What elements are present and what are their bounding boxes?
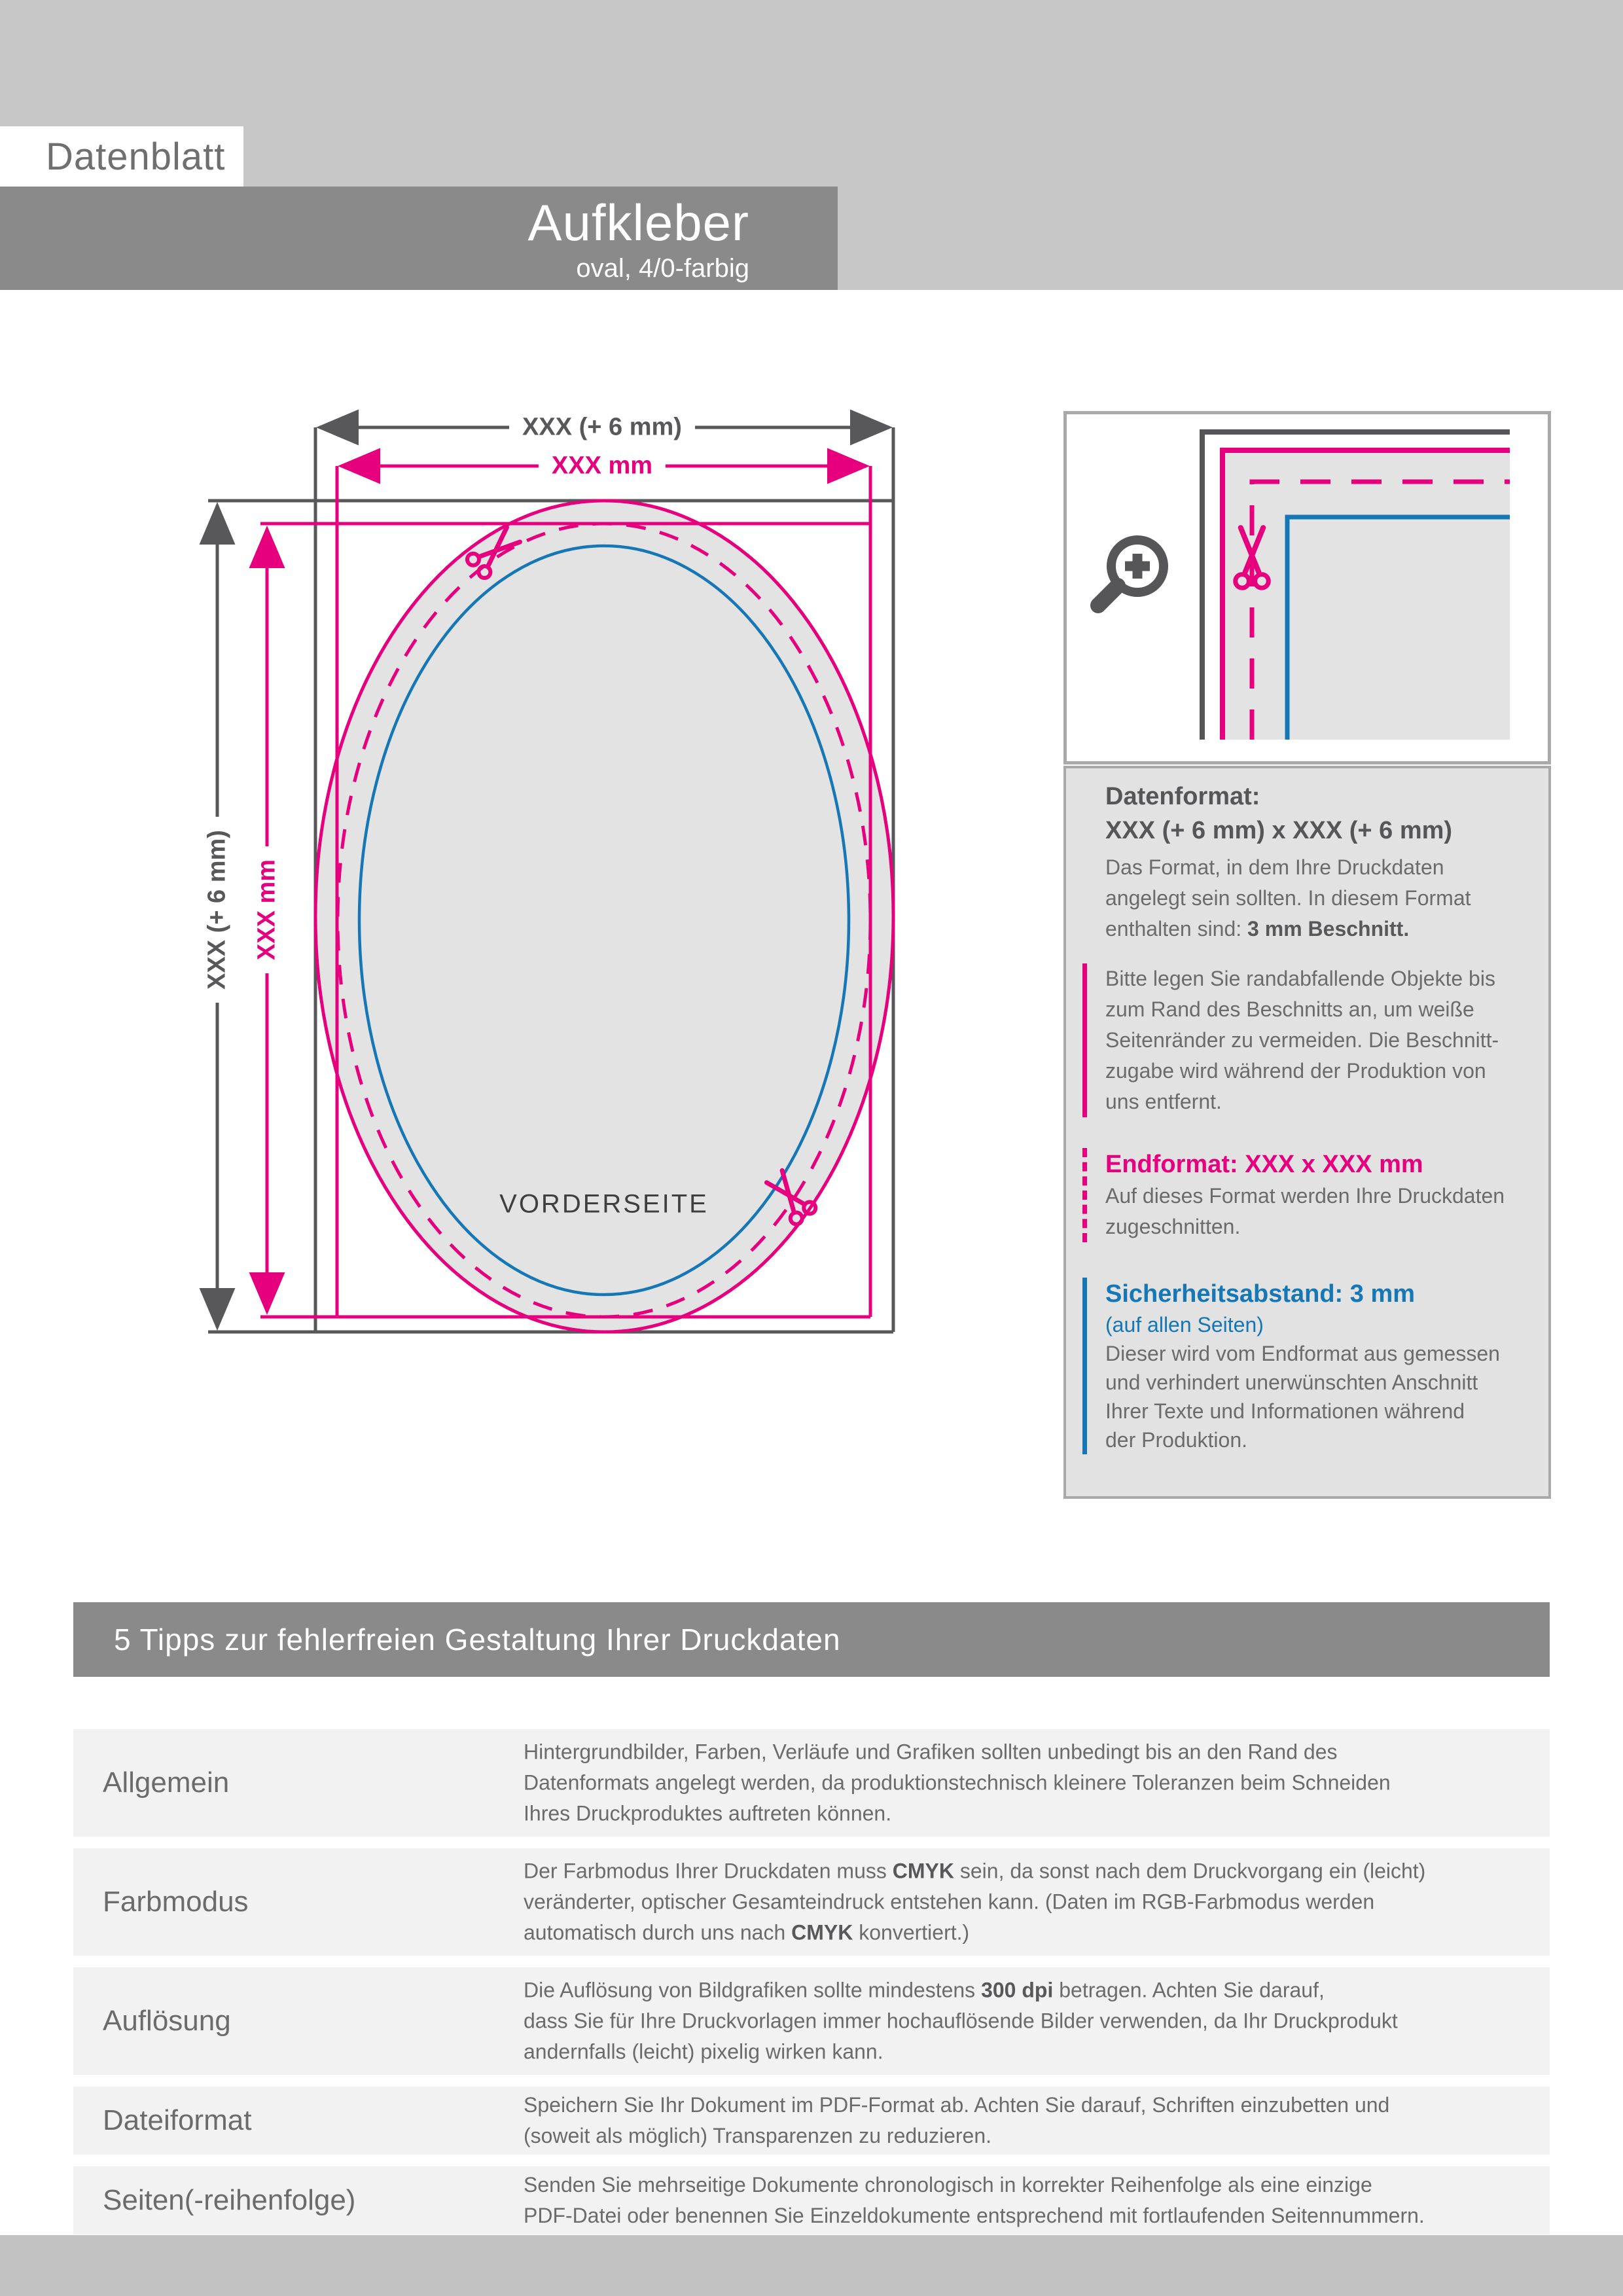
- tips-row-label: Dateiformat: [103, 2104, 251, 2137]
- safety-title: Sicherheitsabstand: 3 mm: [1105, 1278, 1522, 1310]
- tips-header-bar: 5 Tipps zur fehlerfreien Gestaltung Ihre…: [73, 1602, 1550, 1677]
- safety-block: Sicherheitsabstand: 3 mm (auf allen Seit…: [1082, 1278, 1522, 1454]
- endformat-title: Endformat: XXX x XXX mm: [1105, 1148, 1522, 1181]
- sheet-label-box: Datenblatt: [0, 126, 243, 187]
- tips-row-label: Seiten(-reihenfolge): [103, 2184, 355, 2217]
- tips-row: Dateiformat Speichern Sie Ihr Dokument i…: [73, 2087, 1550, 2155]
- tips-row-text: Speichern Sie Ihr Dokument im PDF-Format…: [524, 2090, 1544, 2151]
- dim-height-outer-label: XXX (+ 6 mm): [202, 817, 233, 1003]
- page-subtitle: oval, 4/0-farbig: [576, 253, 749, 284]
- endformat-body: Auf dieses Format werden Ihre Druckdaten…: [1105, 1181, 1522, 1242]
- datasheet-page: { "header": { "sheet_label": "Datenblatt…: [0, 0, 1623, 2296]
- tips-row-label: Allgemein: [103, 1767, 229, 1799]
- dim-height-inner-label: XXX mm: [252, 846, 283, 973]
- bleed-note: Bitte legen Sie randabfallende Objekte b…: [1082, 963, 1522, 1117]
- corner-detail-box: [1063, 411, 1551, 764]
- dim-width-inner-label: XXX mm: [539, 451, 666, 482]
- format-info-panel: Datenformat: XXX (+ 6 mm) x XXX (+ 6 mm)…: [1063, 766, 1551, 1499]
- datenformat-title: Datenformat:: [1105, 780, 1522, 813]
- tips-row-text: Der Farbmodus Ihrer Druckdaten muss CMYK…: [524, 1856, 1544, 1948]
- safety-body: Dieser wird vom Endformat aus gemessenun…: [1105, 1339, 1522, 1454]
- tips-row-text: Hintergrundbilder, Farben, Verläufe und …: [524, 1737, 1544, 1829]
- diagram-canvas: [0, 367, 982, 1388]
- dim-width-outer-label: XXX (+ 6 mm): [509, 412, 695, 443]
- tips-title: 5 Tipps zur fehlerfreien Gestaltung Ihre…: [114, 1622, 841, 1657]
- tips-row: Farbmodus Der Farbmodus Ihrer Druckdaten…: [73, 1848, 1550, 1956]
- detail-bleed-fill: [1222, 450, 1510, 740]
- page-title: Aufkleber: [527, 192, 749, 253]
- safety-subtitle: (auf allen Seiten): [1105, 1310, 1522, 1339]
- tips-table: Allgemein Hintergrundbilder, Farben, Ver…: [73, 1729, 1550, 2246]
- tips-row: Allgemein Hintergrundbilder, Farben, Ver…: [73, 1729, 1550, 1837]
- tips-row-label: Farbmodus: [103, 1886, 249, 1918]
- sheet-label: Datenblatt: [46, 135, 225, 179]
- magnifier-icon: [1098, 540, 1164, 605]
- datenformat-value: XXX (+ 6 mm) x XXX (+ 6 mm): [1105, 814, 1522, 847]
- sticker-diagram: XXX (+ 6 mm) XXX mm XXX (+ 6 mm) XXX mm …: [0, 367, 982, 1388]
- title-bar: Aufkleber oval, 4/0-farbig: [0, 187, 838, 290]
- tips-row: Seiten(-reihenfolge) Senden Sie mehrseit…: [73, 2166, 1550, 2234]
- corner-detail-canvas: [1067, 414, 1548, 761]
- front-side-label: VORDERSEITE: [499, 1190, 709, 1219]
- tips-row-label: Auflösung: [103, 2005, 231, 2037]
- tips-row-text: Senden Sie mehrseitige Dokumente chronol…: [524, 2170, 1544, 2231]
- datenformat-body: Das Format, in dem Ihre Druckdatenangele…: [1105, 852, 1522, 944]
- footer-band: [0, 2235, 1623, 2296]
- tips-row-text: Die Auflösung von Bildgrafiken sollte mi…: [524, 1975, 1544, 2068]
- tips-row: Auflösung Die Auflösung von Bildgrafiken…: [73, 1967, 1550, 2075]
- endformat-block: Endformat: XXX x XXX mm Auf dieses Forma…: [1082, 1148, 1522, 1242]
